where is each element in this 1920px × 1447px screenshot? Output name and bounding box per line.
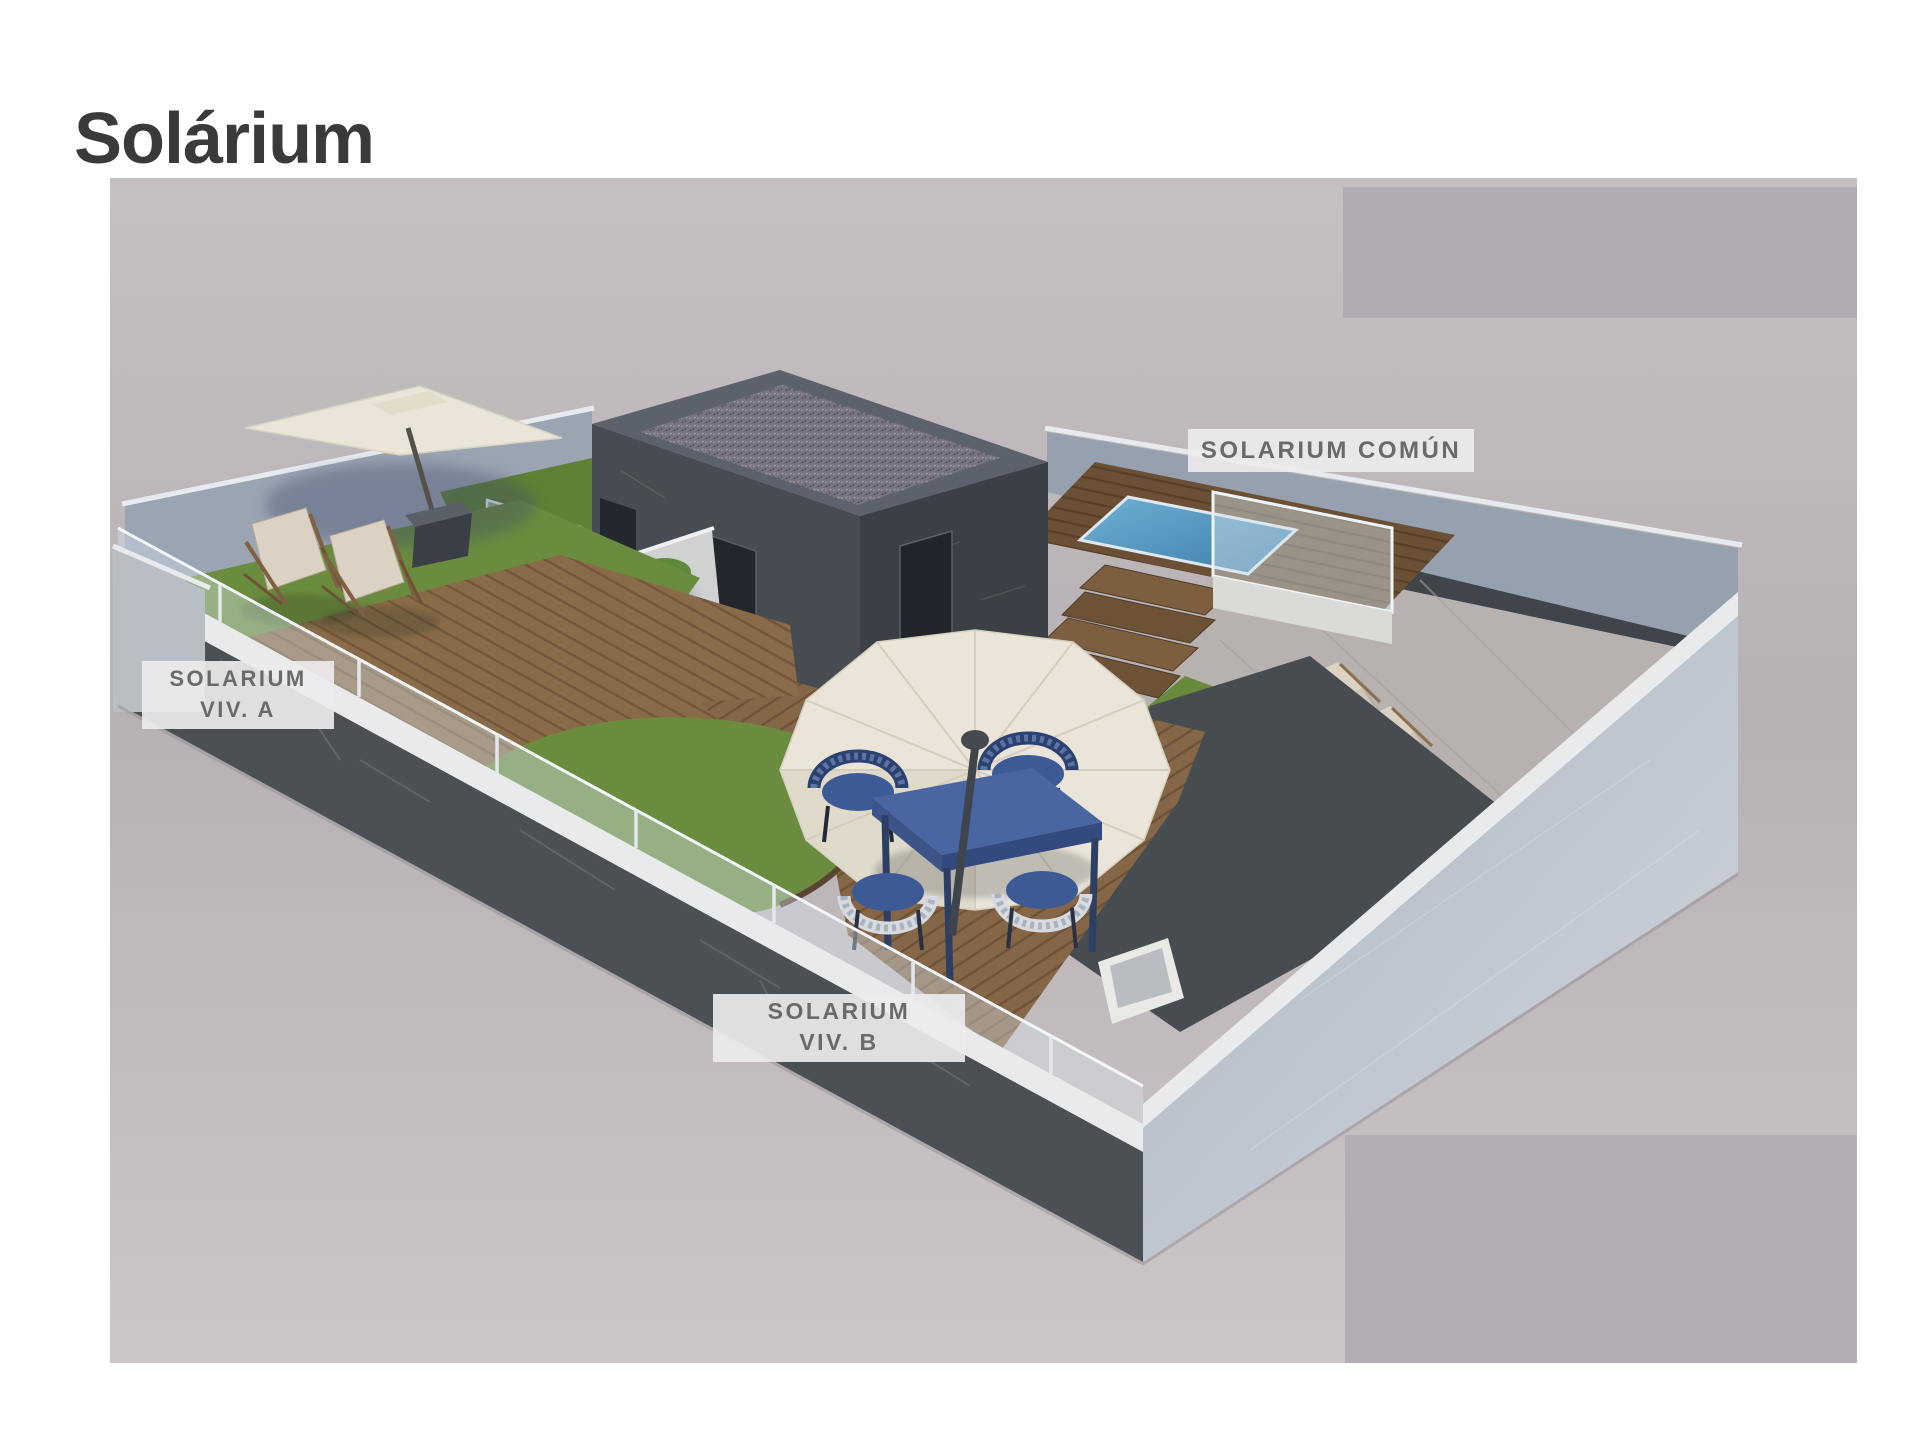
overlay-rectangle-bottom-right [1345, 1135, 1857, 1363]
solarium-render: SOLARIUM COMÚN SOLARIUM VIV. A SOLARIUM … [0, 0, 1920, 1447]
label-solarium-comun: SOLARIUM COMÚN [1188, 429, 1474, 472]
label-solarium-viv-b: SOLARIUM VIV. B [713, 994, 965, 1062]
label-solarium-viv-a: SOLARIUM VIV. A [142, 661, 334, 729]
overlay-rectangle-top-right [1343, 187, 1857, 318]
